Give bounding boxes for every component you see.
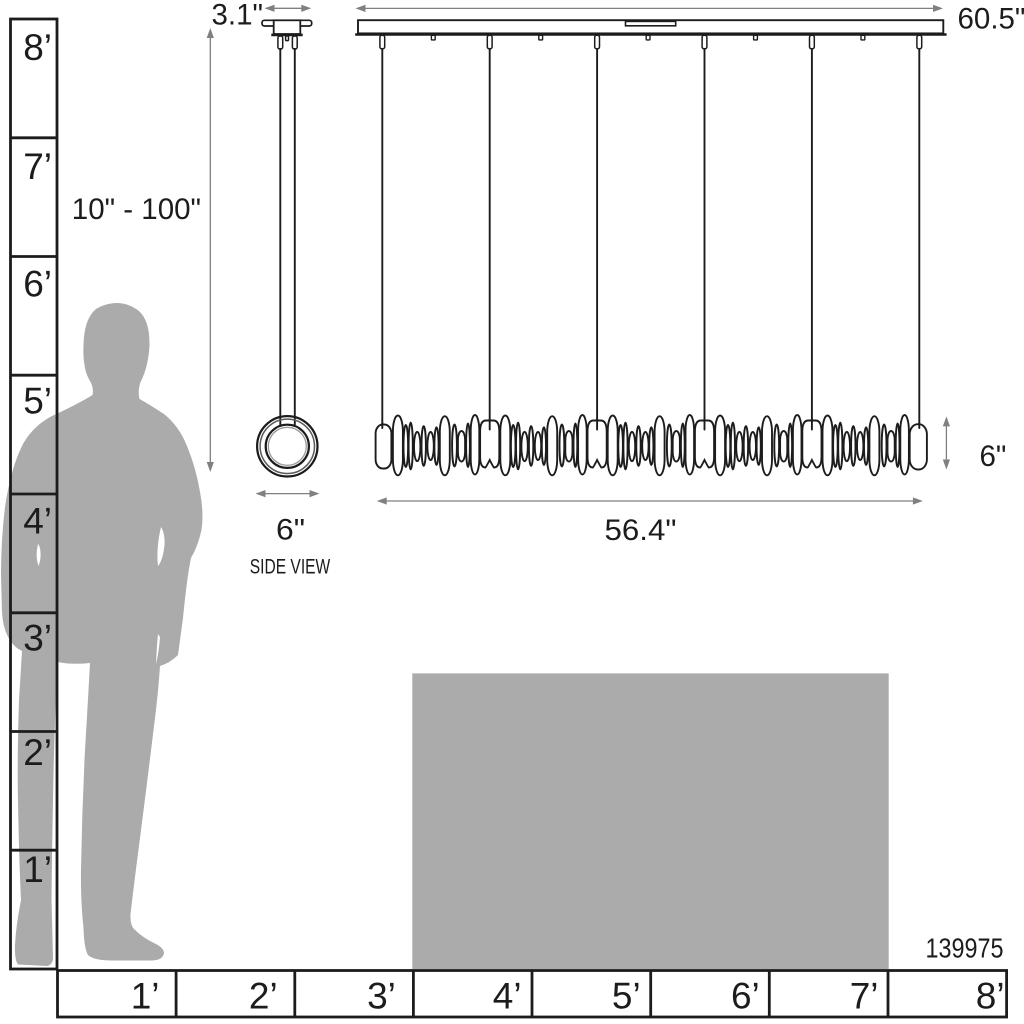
svg-text:56.4": 56.4" (605, 514, 677, 547)
svg-text:1’: 1’ (23, 849, 52, 890)
svg-text:3.1": 3.1" (212, 0, 263, 32)
svg-text:4’: 4’ (493, 976, 522, 1017)
svg-text:139975: 139975 (926, 932, 1004, 963)
svg-text:7’: 7’ (23, 146, 52, 187)
svg-text:2’: 2’ (23, 732, 52, 773)
svg-text:1’: 1’ (131, 976, 160, 1017)
svg-text:60.5": 60.5" (958, 2, 1024, 35)
svg-text:8’: 8’ (976, 976, 1005, 1017)
svg-text:3’: 3’ (23, 618, 52, 659)
svg-text:4’: 4’ (23, 500, 52, 541)
svg-text:5’: 5’ (23, 380, 52, 421)
svg-text:6": 6" (276, 514, 305, 547)
svg-text:3’: 3’ (367, 976, 396, 1017)
svg-text:6’: 6’ (731, 976, 760, 1017)
svg-text:5’: 5’ (612, 976, 641, 1017)
svg-text:2’: 2’ (249, 976, 278, 1017)
svg-text:10" - 100": 10" - 100" (72, 193, 201, 226)
svg-text:7’: 7’ (850, 976, 879, 1017)
svg-text:SIDE VIEW: SIDE VIEW (250, 556, 331, 579)
svg-text:6": 6" (980, 440, 1007, 473)
svg-text:8’: 8’ (23, 27, 52, 68)
svg-text:6’: 6’ (23, 263, 52, 304)
